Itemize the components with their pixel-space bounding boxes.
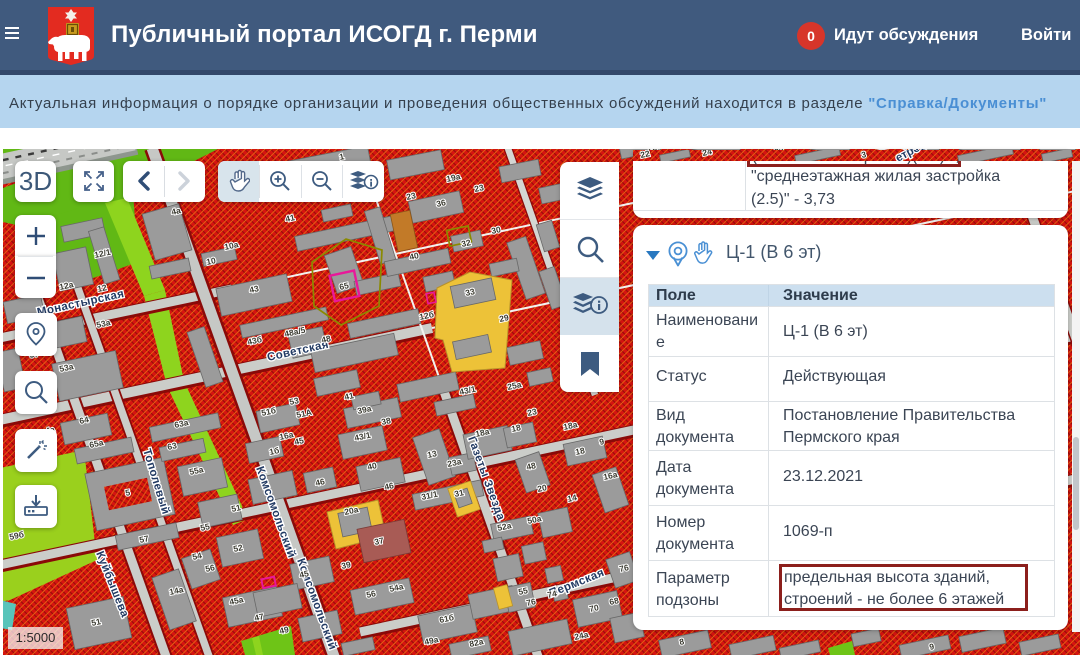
svg-text:1б: 1б <box>268 445 280 457</box>
